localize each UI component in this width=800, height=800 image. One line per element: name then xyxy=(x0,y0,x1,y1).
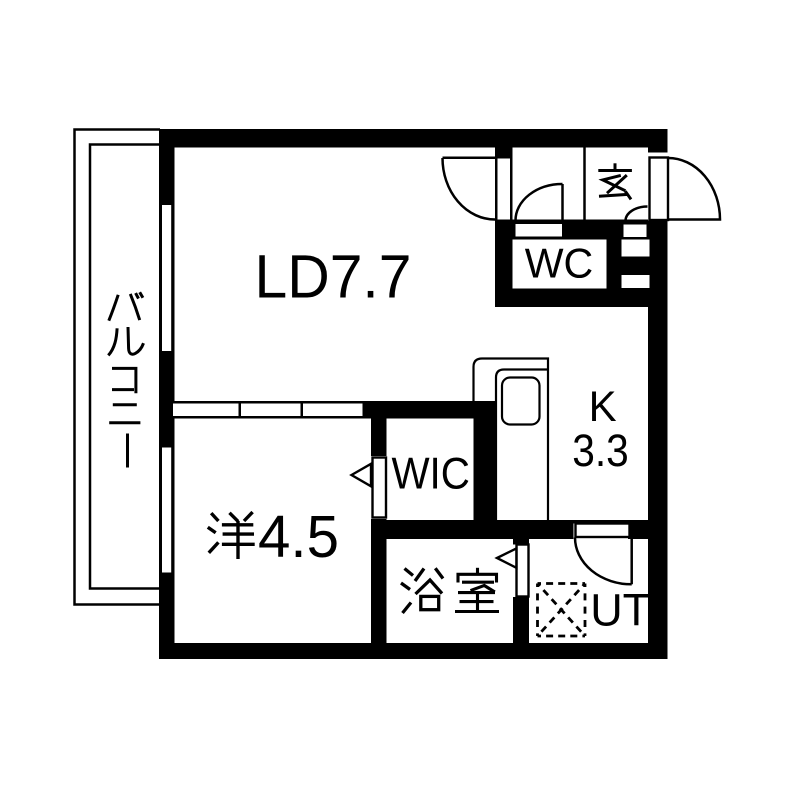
svg-text:4.5: 4.5 xyxy=(258,503,339,570)
svg-text:K: K xyxy=(589,383,617,431)
svg-text:WC: WC xyxy=(525,239,594,286)
svg-text:3.3: 3.3 xyxy=(572,425,629,476)
svg-text:LD7.7: LD7.7 xyxy=(255,243,412,312)
svg-text:UT: UT xyxy=(590,584,650,635)
svg-text:WIC: WIC xyxy=(391,450,470,499)
